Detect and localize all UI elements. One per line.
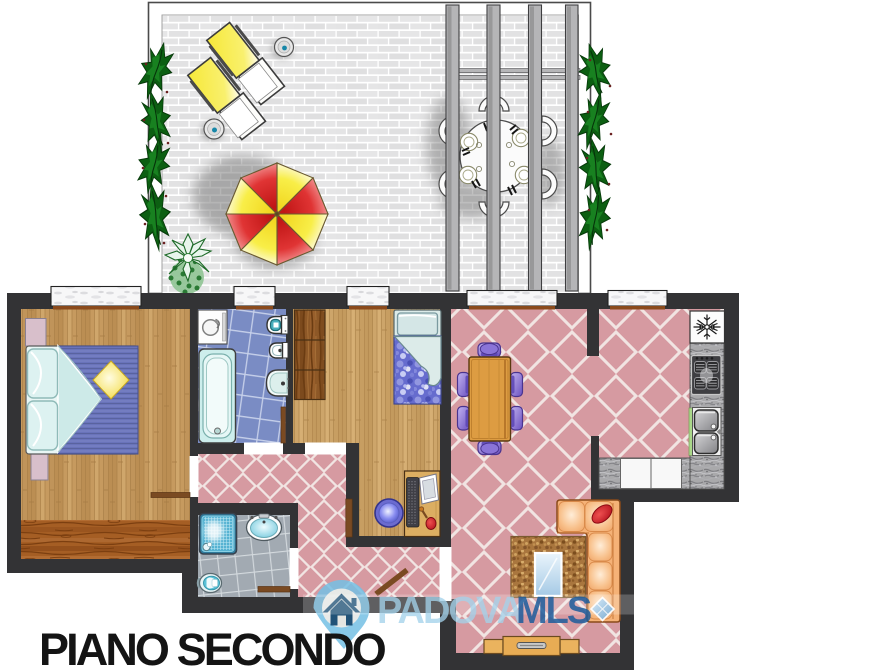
svg-text:MLS: MLS (516, 590, 591, 632)
svg-text:PIANO SECONDO: PIANO SECONDO (39, 624, 386, 670)
svg-text:PADOVA: PADOVA (377, 590, 523, 632)
